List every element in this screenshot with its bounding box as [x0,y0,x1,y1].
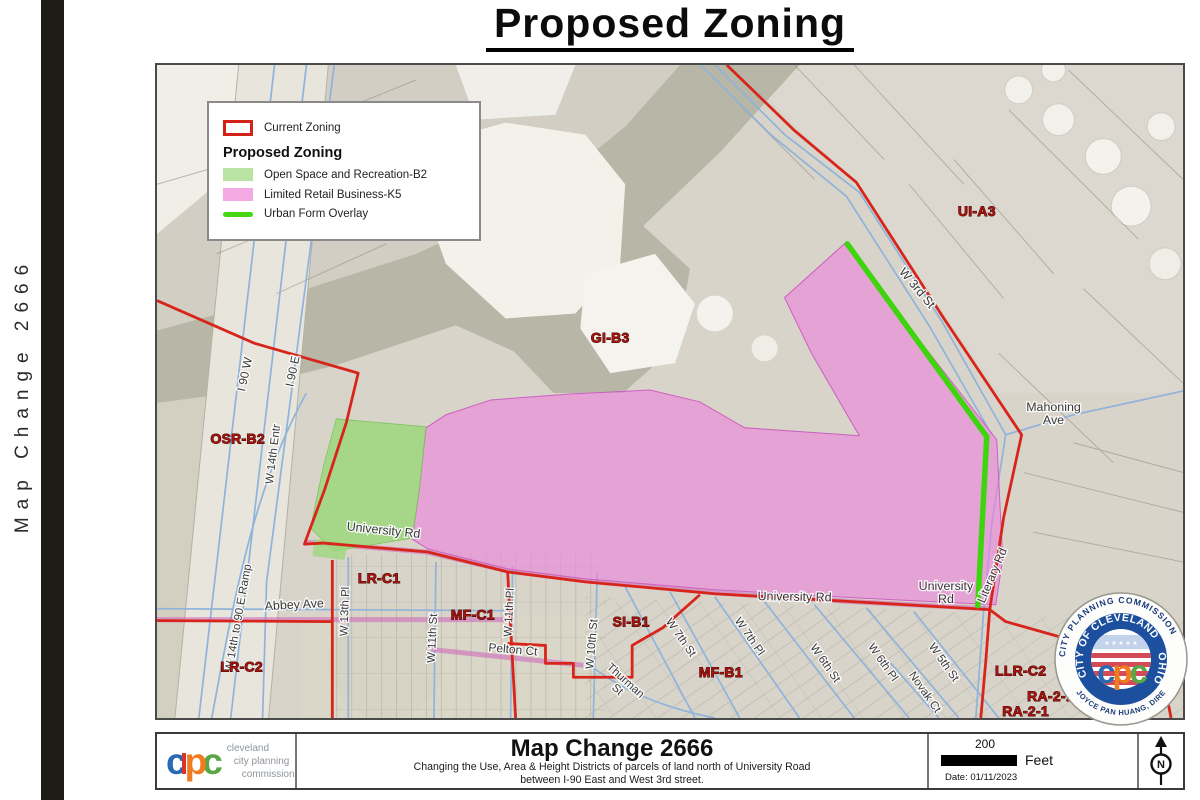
city-of-cleveland-seal: ★ ★ ★ ★ ★ cpc CITY PLANNING COMMISSION J… [1053,591,1189,727]
scale-value: 200 [975,737,995,751]
zone-label: LR-C1 [358,570,401,586]
legend-limited-retail: Limited Retail Business-K5 [223,188,471,201]
zone-label: LR-C2 [220,658,263,674]
planning-commission-wordmark: cleveland city planning commission [227,742,295,781]
legend-current-zoning: Current Zoning [223,120,471,136]
svg-text:★ ★ ★ ★ ★: ★ ★ ★ ★ ★ [1104,640,1138,647]
street-label: W 13th Pl [338,587,352,637]
seal-cpc-monogram: cpc [1097,653,1148,690]
footer-description-line1: Changing the Use, Area & Height District… [297,761,927,774]
legend-open-space: Open Space and Recreation-B2 [223,168,471,181]
footer-description-line2: between I-90 East and West 3rd street. [297,774,927,787]
zone-label: SI-B1 [613,614,650,630]
north-letter: N [1157,759,1165,771]
cpc-monogram: c p c [166,743,218,780]
zone-label: LLR-C2 [995,662,1046,678]
map-footer: c p c cleveland city planning commission… [155,732,1185,790]
zoning-map: I 90 WI 90 EW 14th EntrW 14th to 90 E Ra… [155,63,1185,720]
scale-bar-block: 200 Feet Date: 01/11/2023 [927,734,1137,788]
north-arrow-icon: N [1145,735,1177,787]
scale-bar [941,755,1017,766]
slide: Map Change 2666 Proposed Zoning [0,0,1200,800]
zone-label: UI-A3 [958,203,996,219]
current-zoning-swatch [223,120,253,136]
north-arrow-block: N [1137,734,1183,788]
zone-label: RA-2-1 [1002,703,1049,718]
street-label: W 11th Pl [502,588,517,637]
footer-cpc-logo: c p c cleveland city planning commission [157,734,297,788]
open-space-swatch [223,168,253,181]
zone-label: MF-B1 [699,664,743,680]
zone-label: MF-C1 [451,607,495,623]
urban-form-swatch [223,212,253,217]
scale-unit: Feet [1025,752,1053,768]
legend-header: Proposed Zoning [223,145,471,161]
footer-title: Map Change 2666 [297,736,927,761]
map-date: Date: 01/11/2023 [945,772,1017,783]
map-legend: Current Zoning Proposed Zoning Open Spac… [207,101,481,241]
footer-title-block: Map Change 2666 Changing the Use, Area &… [297,734,927,788]
zone-label: OSR-B2 [210,431,264,447]
left-black-bar [41,0,64,800]
street-label: University Rd [757,589,831,604]
legend-urban-form: Urban Form Overlay [223,208,471,220]
limited-retail-swatch [223,188,253,201]
side-vertical-title: Map Change 2666 [12,257,34,533]
zone-label: GI-B3 [591,329,630,345]
page-title: Proposed Zoning [155,0,1185,52]
